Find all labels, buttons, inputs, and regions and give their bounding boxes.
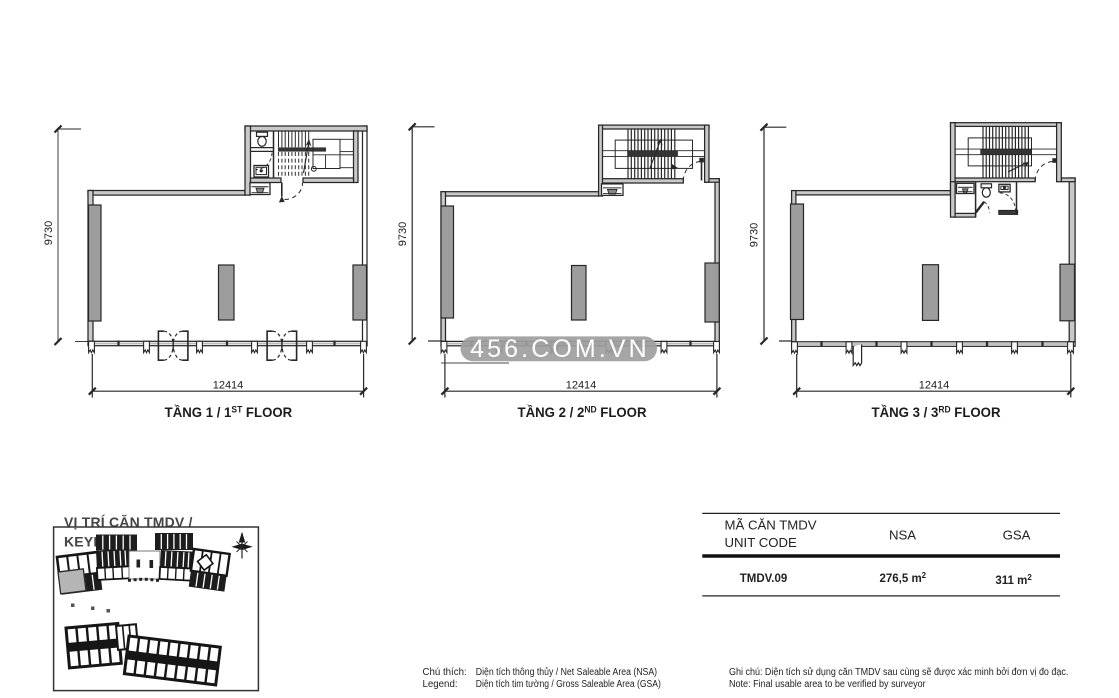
svg-text:9730: 9730 xyxy=(749,223,761,247)
svg-text:9730: 9730 xyxy=(43,221,55,245)
svg-text:12414: 12414 xyxy=(919,380,950,392)
svg-text:Chú thích:: Chú thích: xyxy=(423,667,467,678)
svg-text:Legend:: Legend: xyxy=(423,679,458,690)
svg-text:GSA: GSA xyxy=(1003,528,1031,543)
svg-text:12414: 12414 xyxy=(213,380,244,392)
svg-text:12414: 12414 xyxy=(566,380,597,392)
svg-text:Note: Final usable area to be: Note: Final usable area to be verified b… xyxy=(729,679,926,690)
svg-text:276,5 m2: 276,5 m2 xyxy=(879,571,926,585)
svg-text:MÃ CĂN TMDV: MÃ CĂN TMDV xyxy=(725,518,817,533)
svg-text:TẦNG 2 / 2ND FLOOR: TẦNG 2 / 2ND FLOOR xyxy=(518,404,647,420)
svg-text:9730: 9730 xyxy=(397,222,409,246)
svg-text:TẦNG 1 / 1ST FLOOR: TẦNG 1 / 1ST FLOOR xyxy=(165,404,292,420)
svg-text:Ghi chú: Diện tích sử dụng căn: Ghi chú: Diện tích sử dụng căn TMDV sau … xyxy=(729,667,1068,678)
svg-text:TẦNG 3 / 3RD FLOOR: TẦNG 3 / 3RD FLOOR xyxy=(872,404,1001,420)
svg-text:Diện tích tim tường / Gross Sa: Diện tích tim tường / Gross Saleable Are… xyxy=(476,679,661,690)
svg-text:NSA: NSA xyxy=(889,528,916,543)
svg-text:UNIT CODE: UNIT CODE xyxy=(725,535,797,550)
svg-text:456.COM.VN: 456.COM.VN xyxy=(470,335,650,363)
svg-text:Diện tích thông thủy / Net Sal: Diện tích thông thủy / Net Saleable Area… xyxy=(476,667,657,678)
svg-text:TMDV.09: TMDV.09 xyxy=(740,573,788,585)
svg-text:311 m2: 311 m2 xyxy=(995,573,1032,587)
